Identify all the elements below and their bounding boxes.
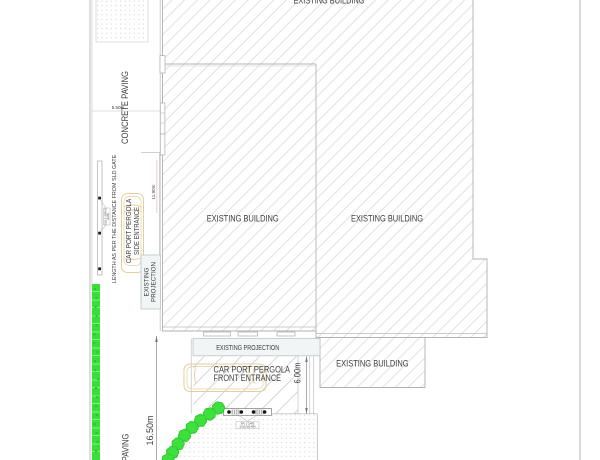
svg-text:SIDE ENTRANCE: SIDE ENTRANCE (132, 207, 141, 255)
svg-text:CONCRETE PAVING: CONCRETE PAVING (120, 71, 130, 144)
svg-text:16.50m: 16.50m (145, 416, 155, 446)
svg-text:3.0x5.0x0.45M: 3.0x5.0x0.45M (240, 425, 256, 428)
svg-text:EXISTING BUILDING: EXISTING BUILDING (351, 214, 423, 224)
svg-text:GATE: GATE (106, 213, 110, 220)
svg-text:EXISTING BUILDING: EXISTING BUILDING (207, 214, 279, 224)
svg-text:FRONT ENTRANCE: FRONT ENTRANCE (214, 373, 282, 383)
svg-text:11.90m: 11.90m (151, 184, 156, 199)
svg-text:LENGTH AS PER THE DISTANCE FRO: LENGTH AS PER THE DISTANCE FROM SLD GATE (112, 154, 118, 283)
svg-text:PROJECTION: PROJECTION (151, 262, 158, 302)
svg-text:EXISTING: EXISTING (144, 267, 151, 296)
svg-text:CONCRETE PAVING: CONCRETE PAVING (121, 433, 131, 460)
svg-text:EXISTING BUILDING: EXISTING BUILDING (294, 0, 365, 6)
svg-text:EXISTING PROJECTION: EXISTING PROJECTION (216, 343, 279, 352)
svg-text:EXISTING BUILDING: EXISTING BUILDING (336, 359, 409, 369)
svg-text:6.00m: 6.00m (293, 363, 303, 384)
